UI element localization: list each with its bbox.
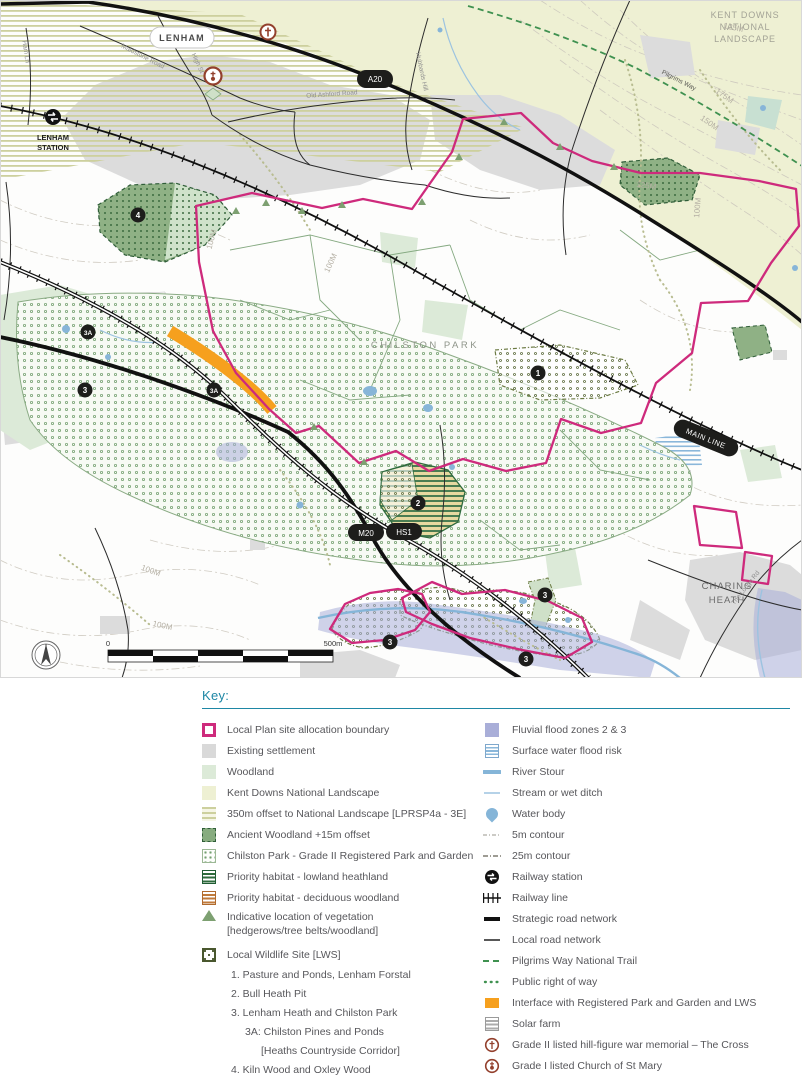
svg-text:LANDSCAPE: LANDSCAPE xyxy=(714,34,776,44)
svg-text:3A: 3A xyxy=(84,330,93,337)
page: 4 3A 3 3A 1 2 3 3 3 xyxy=(0,0,802,1080)
legend-item: 25m contour xyxy=(483,845,790,866)
legend-item: Existing settlement xyxy=(202,740,483,761)
a20-label: A20 xyxy=(368,75,383,84)
lws-list-item: 1. Pasture and Ponds, Lenham Forstal xyxy=(231,965,483,984)
svg-text:1: 1 xyxy=(536,369,541,378)
legend-item: Local Plan site allocation boundary xyxy=(202,719,483,740)
legend-item: Solar farm xyxy=(483,1013,790,1034)
scale-start-label: 0 xyxy=(106,639,110,648)
svg-text:2: 2 xyxy=(416,499,421,508)
lws-list-item: 3A: Chilston Pines and Ponds xyxy=(245,1022,483,1041)
railway-line-glyph xyxy=(483,892,501,904)
m20-label: M20 xyxy=(358,529,374,538)
lenham-station-label: LENHAM xyxy=(37,133,69,142)
fluvial-flood-swatch xyxy=(485,723,499,737)
strategic-road-glyph xyxy=(483,914,501,924)
settlement-swatch xyxy=(202,744,216,758)
legend-rule xyxy=(202,708,790,709)
legend-item: Water body xyxy=(483,803,790,824)
legend-item: Railway line xyxy=(483,887,790,908)
legend: Key: Local Plan site allocation boundary… xyxy=(202,688,790,1079)
war-memorial-glyph xyxy=(483,1037,501,1053)
svg-text:3: 3 xyxy=(524,655,529,664)
chilston-park-swatch xyxy=(202,849,216,863)
lws-list-item: 4. Kiln Wood and Oxley Wood xyxy=(231,1060,483,1079)
lws-list-item: [Heaths Countryside Corridor] xyxy=(261,1041,483,1060)
svg-text:100M: 100M xyxy=(692,197,703,218)
legend-item: Chilston Park - Grade II Registered Park… xyxy=(202,845,483,866)
railway-station-glyph xyxy=(483,869,501,885)
site-boundary-swatch xyxy=(202,723,216,737)
hs1-label: HS1 xyxy=(396,528,412,537)
contour-5m-glyph xyxy=(483,830,501,840)
ancient-woodland-swatch xyxy=(202,828,216,842)
interface-swatch xyxy=(485,998,499,1008)
pilgrims-way-glyph xyxy=(483,956,501,966)
vegetation-swatch xyxy=(202,910,216,921)
legend-item: Public right of way xyxy=(483,971,790,992)
svg-text:3: 3 xyxy=(543,591,548,600)
scale-end-label: 500m xyxy=(324,639,343,648)
north-arrow xyxy=(32,641,60,669)
chilston-park-label: CHILSTON PARK xyxy=(371,340,479,351)
water-body-swatch xyxy=(484,805,501,822)
svg-text:LENHAM: LENHAM xyxy=(159,33,205,43)
legend-item: 5m contour xyxy=(483,824,790,845)
lowland-heathland-swatch xyxy=(202,870,216,884)
svg-text:3: 3 xyxy=(83,386,88,395)
legend-item: Railway station xyxy=(483,866,790,887)
local-road-glyph xyxy=(483,935,501,945)
legend-item: Fluvial flood zones 2 & 3 xyxy=(483,719,790,740)
legend-item: Pilgrims Way National Trail xyxy=(483,950,790,971)
lws-swatch xyxy=(202,948,216,962)
lenham-label: LENHAM xyxy=(150,27,214,48)
legend-item: Strategic road network xyxy=(483,908,790,929)
lws-list-item: 3. Lenham Heath and Chilston Park xyxy=(231,1003,483,1022)
svg-text:3: 3 xyxy=(388,638,393,647)
contour-25m-glyph xyxy=(483,851,501,861)
war-memorial-icon xyxy=(261,25,276,40)
legend-left-column: Local Plan site allocation boundary Exis… xyxy=(202,719,483,1079)
deciduous-woodland-swatch xyxy=(202,891,216,905)
legend-item: Kent Downs National Landscape xyxy=(202,782,483,803)
surface-water-swatch xyxy=(485,744,499,758)
legend-item: Indicative location of vegetation [hedge… xyxy=(202,908,483,944)
svg-text:3A: 3A xyxy=(210,388,219,395)
church-glyph xyxy=(483,1058,501,1074)
lws-site-list: 1. Pasture and Ponds, Lenham Forstal 2. … xyxy=(231,965,483,1079)
svg-text:STATION: STATION xyxy=(37,143,69,152)
svg-text:4: 4 xyxy=(136,211,141,220)
legend-item: Woodland xyxy=(202,761,483,782)
railway-station-icon xyxy=(45,109,61,125)
legend-title: Key: xyxy=(202,688,790,703)
legend-item: Local road network xyxy=(483,929,790,950)
legend-item: Priority habitat - lowland heathland xyxy=(202,866,483,887)
legend-item: Local Wildlife Site [LWS] xyxy=(202,944,483,965)
map-svg: 4 3A 3 3A 1 2 3 3 3 xyxy=(0,0,802,678)
lws-list-item: 2. Bull Heath Pit xyxy=(231,984,483,1003)
legend-item: 350m offset to National Landscape [LPRSP… xyxy=(202,803,483,824)
stream-glyph xyxy=(483,788,501,798)
legend-item: Grade II listed hill-figure war memorial… xyxy=(483,1034,790,1055)
solar-farm-swatch xyxy=(485,1017,499,1031)
legend-item: Surface water flood risk xyxy=(483,740,790,761)
kent-downs-swatch xyxy=(202,786,216,800)
river-stour-glyph xyxy=(483,767,501,777)
legend-item: Grade I listed Church of St Mary xyxy=(483,1055,790,1076)
legend-item: Ancient Woodland +15m offset xyxy=(202,824,483,845)
kent-downs-label: KENT DOWNS xyxy=(711,10,780,20)
offset-350m-swatch xyxy=(202,807,216,821)
legend-item: Stream or wet ditch xyxy=(483,782,790,803)
legend-item: River Stour xyxy=(483,761,790,782)
legend-right-column: Fluvial flood zones 2 & 3 Surface water … xyxy=(483,719,790,1079)
public-right-of-way-glyph xyxy=(483,977,501,987)
map: 4 3A 3 3A 1 2 3 3 3 xyxy=(0,0,802,678)
legend-item: Priority habitat - deciduous woodland xyxy=(202,887,483,908)
legend-item: Interface with Registered Park and Garde… xyxy=(483,992,790,1013)
woodland-swatch xyxy=(202,765,216,779)
